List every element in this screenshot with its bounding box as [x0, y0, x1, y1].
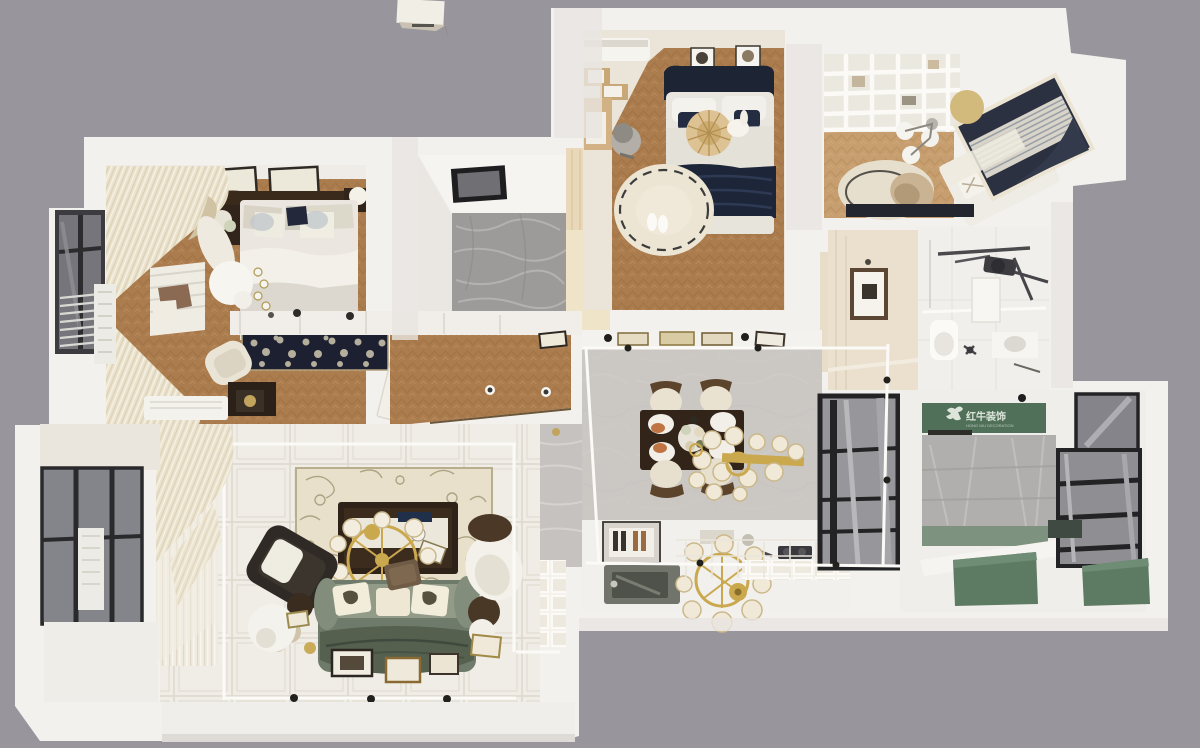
svg-text:红牛装饰: 红牛装饰 [966, 410, 1006, 423]
svg-text:HONG NIU DECORATION: HONG NIU DECORATION [966, 423, 1014, 428]
